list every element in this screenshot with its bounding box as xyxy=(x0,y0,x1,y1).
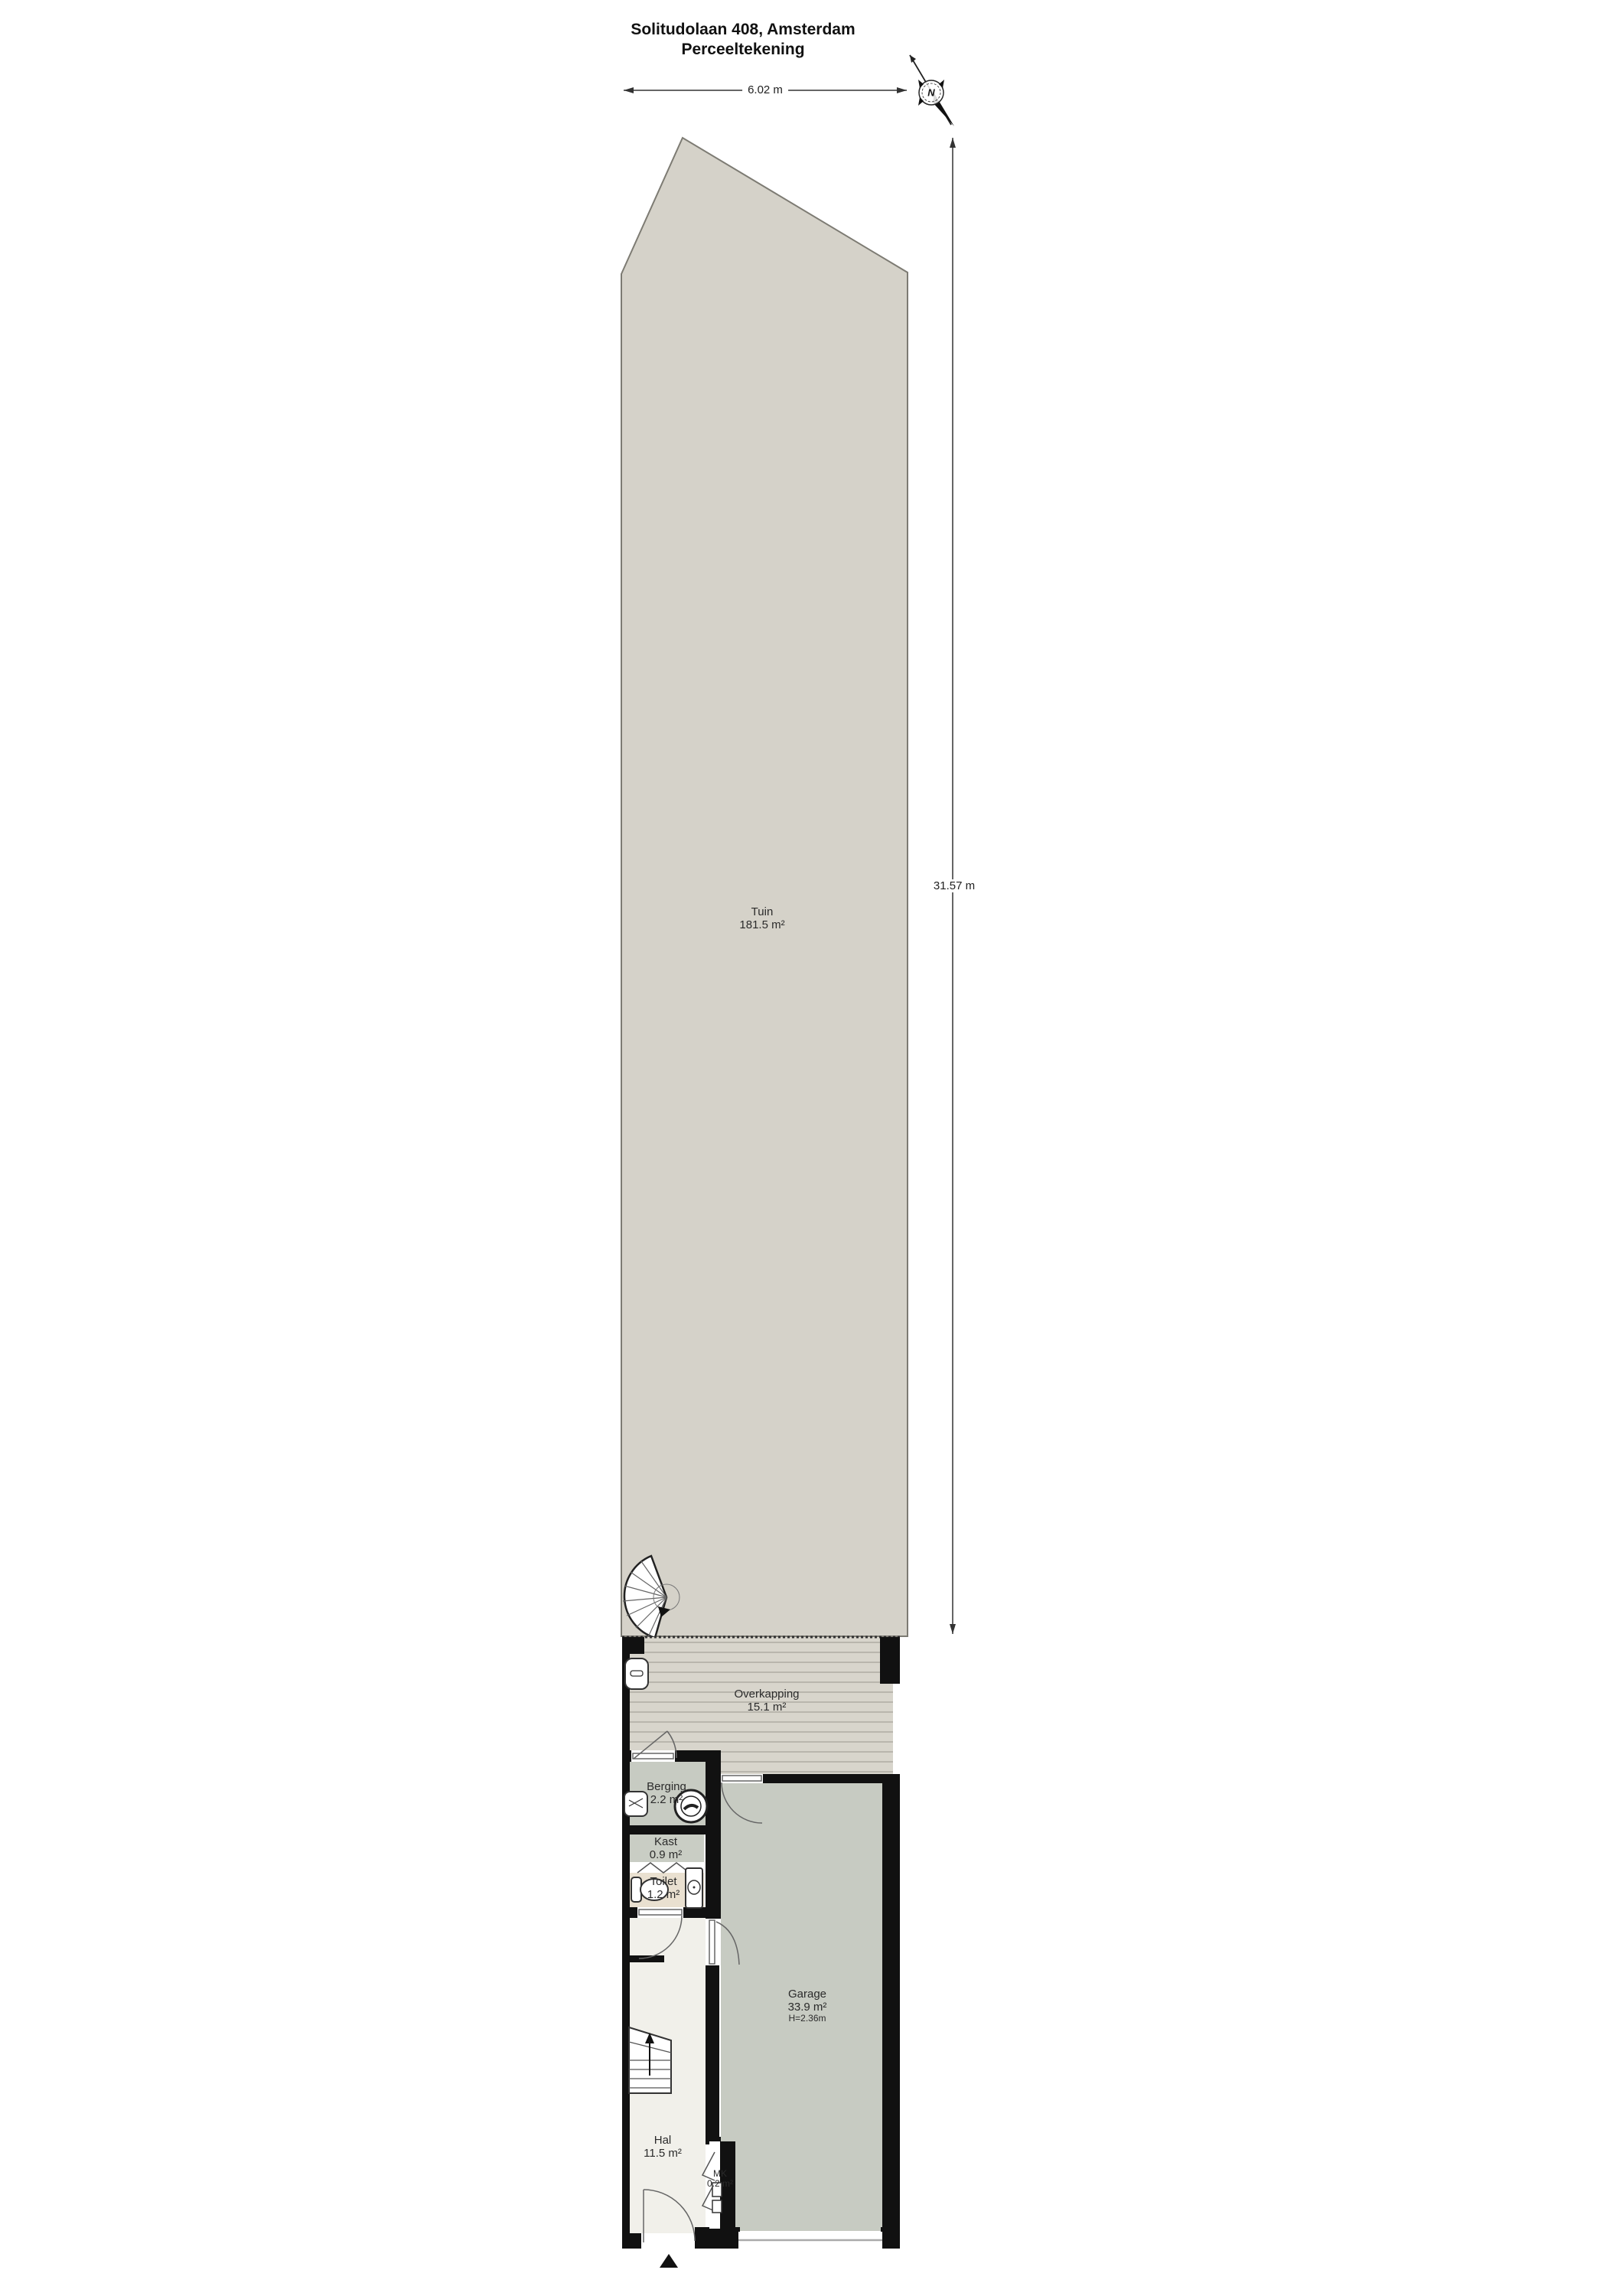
sink-icon xyxy=(686,1868,702,1908)
room-label-garage: Garage 33.9 m² H=2.36m xyxy=(788,1988,827,2024)
entrance-arrow-icon xyxy=(660,2254,678,2268)
kast-area: 0.9 m² xyxy=(650,1848,683,1861)
compass-north-label: N xyxy=(927,87,934,99)
room-label-tuin: Tuin 181.5 m² xyxy=(739,905,784,931)
room-label-toilet: Toilet 1.2 m² xyxy=(647,1875,680,1901)
floorplan-page: Solitudolaan 408, Amsterdam Perceelteken… xyxy=(0,0,1623,2296)
overkapping-area: 15.1 m² xyxy=(734,1701,799,1714)
width-dimension-label: 6.02 m xyxy=(742,83,788,96)
floorplan-drawing xyxy=(0,0,1623,2296)
room-label-kast: Kast 0.9 m² xyxy=(650,1835,683,1861)
room-label-mk: MK 0.2 m² xyxy=(707,2169,733,2189)
overkapping-name: Overkapping xyxy=(734,1688,799,1701)
room-label-overkapping: Overkapping 15.1 m² xyxy=(734,1688,799,1714)
room-label-hal: Hal 11.5 m² xyxy=(644,2134,682,2160)
toilet-area: 1.2 m² xyxy=(647,1888,680,1901)
title-address: Solitudolaan 408, Amsterdam xyxy=(631,20,855,40)
wall-unit-icon xyxy=(625,1658,648,1689)
hal-area: 11.5 m² xyxy=(644,2147,682,2160)
garage-height: H=2.36m xyxy=(788,2014,827,2024)
berging-name: Berging xyxy=(647,1780,686,1793)
berging-area: 2.2 m² xyxy=(647,1793,686,1806)
garage-area: 33.9 m² xyxy=(788,2001,827,2014)
page-title: Solitudolaan 408, Amsterdam Perceelteken… xyxy=(631,20,855,60)
room-label-berging: Berging 2.2 m² xyxy=(647,1780,686,1806)
mk-area: 0.2 m² xyxy=(707,2179,733,2189)
toilet-name: Toilet xyxy=(647,1875,680,1888)
title-subtitle: Perceeltekening xyxy=(631,40,855,60)
boiler-icon xyxy=(624,1792,647,1816)
garage-name: Garage xyxy=(788,1988,827,2001)
tuin-name: Tuin xyxy=(739,905,784,918)
depth-dimension-label: 31.57 m xyxy=(928,879,980,892)
tuin-area: 181.5 m² xyxy=(739,918,784,931)
garden-area xyxy=(621,138,908,1636)
hal-name: Hal xyxy=(644,2134,682,2147)
kast-name: Kast xyxy=(650,1835,683,1848)
